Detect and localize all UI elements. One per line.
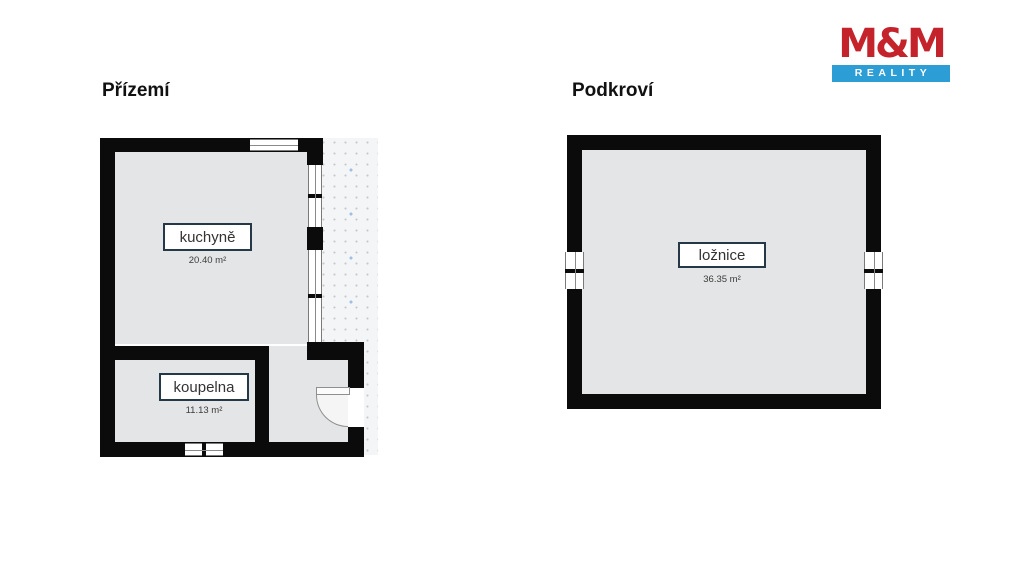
- room-area-loznice: 36.35 m²: [678, 274, 766, 285]
- room-name-loznice: ložnice: [699, 247, 746, 264]
- mm-reality-logo: M&M REALITY: [832, 23, 950, 82]
- window-top: [250, 139, 298, 151]
- window-divider: [308, 194, 322, 198]
- room-label-kuchyne: kuchyně: [163, 223, 252, 251]
- window-divider: [308, 294, 322, 298]
- exterior-wall-right-upper: [307, 138, 323, 165]
- window-bottom: [185, 443, 223, 456]
- door-leaf: [316, 387, 350, 395]
- exterior-wall-right-middle: [307, 227, 323, 250]
- hallway-wall-below-door: [348, 427, 364, 442]
- floor-title-prizemi: Přízemí: [102, 80, 170, 102]
- door-opening: [348, 388, 364, 427]
- exterior-wall-top: [567, 135, 881, 150]
- room-name-koupelna: koupelna: [174, 379, 235, 396]
- floorplan-podkrovi: ložnice 36.35 m²: [567, 135, 881, 409]
- floorplan-page: Přízemí Podkroví M&M REALITY: [0, 0, 1024, 566]
- logo-reality-bar: REALITY: [832, 65, 950, 82]
- window-right-lower: [308, 250, 322, 342]
- window-right-upper: [308, 165, 322, 227]
- room-name-kuchyne: kuchyně: [180, 229, 236, 246]
- interior-wall-vertical: [255, 360, 269, 442]
- logo-mm-text: M&M: [832, 23, 950, 65]
- room-area-kuchyne: 20.40 m²: [163, 255, 252, 266]
- window-divider: [864, 269, 883, 273]
- exterior-wall-bottom: [100, 442, 364, 457]
- window-divider: [565, 269, 584, 273]
- loznice-floor: [576, 144, 872, 400]
- room-label-loznice: ložnice: [678, 242, 766, 268]
- window-left: [565, 252, 584, 289]
- floorplan-prizemi: kuchyně 20.40 m² koupelna 11.13 m²: [100, 138, 378, 458]
- exterior-wall-left: [100, 138, 115, 457]
- floor-title-podkrovi: Podkroví: [572, 80, 653, 102]
- room-area-koupelna: 11.13 m²: [159, 405, 249, 416]
- hallway-wall-above-door: [348, 356, 364, 388]
- exterior-wall-bottom: [567, 394, 881, 409]
- room-label-koupelna: koupelna: [159, 373, 249, 401]
- window-divider: [202, 443, 206, 456]
- interior-wall-horizontal: [115, 346, 269, 360]
- window-right: [864, 252, 883, 289]
